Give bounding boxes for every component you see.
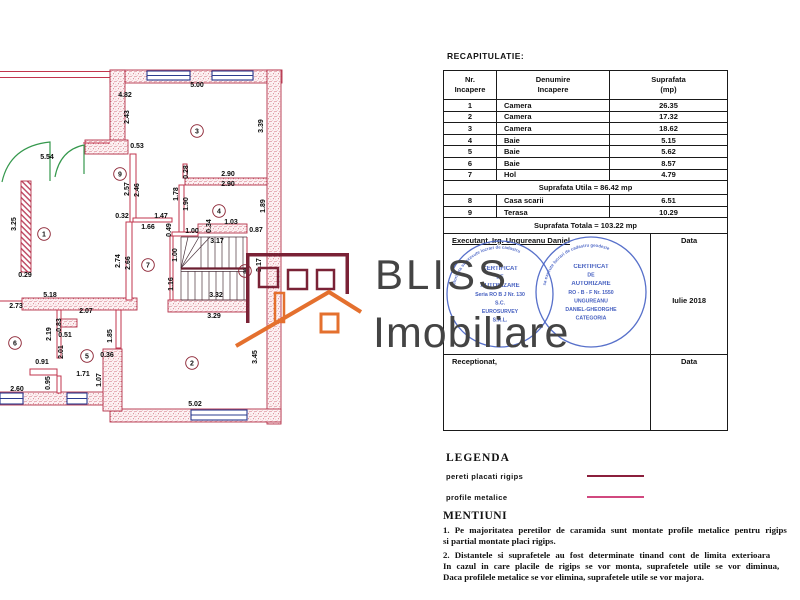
dimension-label: 0.28 [183,165,190,179]
table-row: 2Camera17.32 [444,111,727,123]
mentiuni-line: si partial montate placi rigips. [443,536,800,547]
dimension-label: 5.18 [43,292,57,299]
room-circle [191,125,204,138]
mentiuni-title: MENTIUNI [443,510,800,522]
table-header-row: Nr.Incapere DenumireIncapere Suprafata(m… [444,71,727,99]
room-number: 8 [243,269,247,276]
hatched-wall [21,181,31,272]
recap-table: Nr.Incapere DenumireIncapere Suprafata(m… [443,70,728,431]
table-cell: 1 [444,100,496,111]
table-cell: 5.15 [609,135,727,146]
room-circle [213,205,226,218]
table-cell: 2 [444,112,496,123]
dimension-label: 2.90 [221,171,235,178]
dimension-label: 3.29 [207,313,221,320]
dimension-label: 0.95 [45,376,52,390]
receptionat-row: Receptionat, Data [444,354,727,367]
stamp-row: Iulie 2018 [444,246,727,354]
legend-label: pereti placati rigips [446,472,523,481]
dimension-label: 0.32 [115,213,129,220]
dimension-label: 1.03 [224,219,238,226]
table-cell: Camera [496,123,609,134]
table-cell: Baie [496,146,609,157]
dimension-label: 1.47 [154,213,168,220]
stairs [181,237,247,300]
room-circle [142,259,155,272]
table-cell: 4.79 [609,170,727,181]
dimension-label: 5.02 [188,401,202,408]
dimension-label: 2.07 [79,308,93,315]
dimension-label: 1.66 [141,224,155,231]
stamp-date: Iulie 2018 [650,246,727,354]
room-number: 2 [190,361,194,368]
table-row: 3Camera18.62 [444,122,727,134]
table-cell: Baie [496,135,609,146]
room-number: 7 [146,263,150,270]
mentiuni-line: In cazul in care placile de rigips se vo… [443,561,800,572]
table-cell: 26.35 [609,100,727,111]
dimension-label: 1.85 [107,329,114,343]
suprafata-utila-row: Suprafata Utila = 86.42 mp [444,180,727,194]
dimension-label: 2.66 [125,256,132,270]
dimension-label: 0.91 [35,359,49,366]
dimension-label: 4.82 [118,92,132,99]
legend-label: profile metalice [446,493,507,502]
room-number: 6 [13,341,17,348]
dimension-label: 0.83 [56,318,63,332]
dimension-label: 3.17 [210,238,224,245]
table-row: 8Casa scarii6.51 [444,194,727,206]
dimension-label: 2.17 [256,258,263,272]
table-row: 7Hol4.79 [444,169,727,181]
dimension-label: 2.74 [115,254,122,268]
table-row: 5Baie5.62 [444,145,727,157]
dimension-label: 0.53 [130,143,144,150]
dimension-label: 1.90 [183,197,190,211]
data-label-2: Data [650,355,727,367]
table-cell: Hol [496,170,609,181]
recap-title: RECAPITULATIE: [447,51,524,61]
header-denumire: DenumireIncapere [496,71,609,99]
room-number: 9 [118,172,122,179]
table-cell: 17.32 [609,112,727,123]
executant-label: Executant, Irg. Ungureanu Daniel [452,236,570,245]
table-cell: 18.62 [609,123,727,134]
table-rows-2: 8Casa scarii6.519Terasa10.29 [444,194,727,217]
mentiuni-line: Daca profilele metalice se vor elimina, … [443,572,800,583]
mentiuni: MENTIUNI 1. Pe majoritatea peretilor de … [443,510,800,583]
table-cell: Terasa [496,207,609,218]
door-arcs [2,142,84,182]
table-cell: 7 [444,170,496,181]
executant-row: Executant, Irg. Ungureanu Daniel Data [444,233,727,246]
table-cell: 9 [444,207,496,218]
table-cell: 5 [444,146,496,157]
room-circle [9,337,22,350]
room-number: 4 [217,209,221,216]
dimension-label: 0.49 [166,223,173,237]
table-cell: 10.29 [609,207,727,218]
legend-line-sample [587,475,644,477]
header-nr: Nr.Incapere [444,71,496,99]
dimension-label: 1.78 [173,187,180,201]
dimension-label: 3.25 [11,217,18,231]
dimension-label: 5.54 [40,154,54,161]
partition-walls [0,72,247,394]
table-cell: 5.62 [609,146,727,157]
table-cell: Camera [496,112,609,123]
dimension-label: 0.51 [58,332,72,339]
table-cell: 8 [444,195,496,206]
table-cell: 6.51 [609,195,727,206]
table-row: 4Baie5.15 [444,134,727,146]
dimension-label: 1.00 [185,228,199,235]
room-labels: 913476528 [9,125,252,370]
dimension-labels: 4.825.002.433.390.535.543.250.290.282.90… [9,82,267,408]
header-suprafata: Suprafata(mp) [609,71,727,99]
dimension-label: 0.87 [249,227,263,234]
dimension-label: 3.39 [258,119,265,133]
dimension-label: 2.90 [221,181,235,188]
dimension-label: 2.01 [58,345,65,359]
table-row: 1Camera26.35 [444,99,727,111]
dimension-label: 2.19 [46,327,53,341]
table-cell: 3 [444,123,496,134]
empty-row [444,367,727,430]
table-row: 6Baie8.57 [444,157,727,169]
walls [0,70,282,424]
room-number: 5 [85,354,89,361]
receptionat-label: Receptionat, [444,355,650,367]
dimension-label: 1.00 [172,248,179,262]
suprafata-totala-row: Suprafata Totala = 103.22 mp [444,217,727,233]
windows-group [0,71,253,420]
table-cell: 6 [444,158,496,169]
dimension-label: 2.43 [124,110,131,124]
room-circle [81,350,94,363]
legend-items: pereti placati rigipsprofile metalice [446,467,726,506]
table-cell: Casa scarii [496,195,609,206]
table-cell: 8.57 [609,158,727,169]
table-cell: Baie [496,158,609,169]
room-circle [186,357,199,370]
room-circle [239,265,252,278]
mentiuni-line: 1. Pe majoritatea peretilor de caramida … [443,525,800,536]
dimension-label: 1.71 [76,371,90,378]
dimension-label: 2.57 [124,182,131,196]
room-number: 3 [195,129,199,136]
room-number: 1 [42,232,46,239]
mentiuni-line: 2. Distantele si suprafetele au fost det… [443,550,800,561]
dimension-label: 3.32 [209,292,223,299]
dimension-label: 1.07 [96,373,103,387]
dimension-label: 0.36 [100,352,114,359]
logo-house-icon [236,253,361,346]
dimension-label: 0.34 [206,219,213,233]
dimension-label: 1.16 [168,277,175,291]
dimension-label: 2.46 [134,183,141,197]
legend: LEGENDA pereti placati rigipsprofile met… [446,452,726,506]
dimension-label: 2.73 [9,303,23,310]
legend-title: LEGENDA [446,452,726,464]
dimension-label: 1.89 [260,199,267,213]
table-row: 9Terasa10.29 [444,206,727,218]
legend-item: pereti placati rigips [446,467,726,485]
dimension-label: 2.60 [10,386,24,393]
dimension-label: 3.45 [252,350,259,364]
table-rows-1: 1Camera26.352Camera17.323Camera18.624Bai… [444,99,727,180]
data-label-1: Data [650,234,727,246]
table-cell: 4 [444,135,496,146]
dimension-label: 5.00 [190,82,204,89]
mentiuni-lines: 1. Pe majoritatea peretilor de caramida … [443,525,800,583]
legend-item: profile metalice [446,488,726,506]
table-cell: Camera [496,100,609,111]
legend-line-sample [587,496,644,498]
room-circle [38,228,51,241]
dimension-label: 0.29 [18,272,32,279]
room-circle [114,168,127,181]
